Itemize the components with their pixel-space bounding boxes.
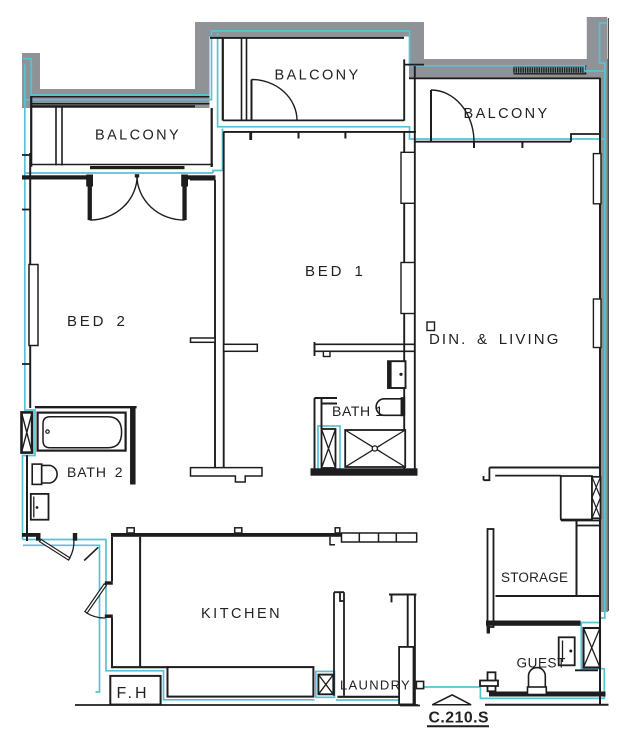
svg-text:DIN. & LIVING: DIN. & LIVING [429,331,561,348]
svg-text:BED 1: BED 1 [305,263,366,280]
svg-text:GUEST: GUEST [517,656,567,671]
svg-text:BATH 1: BATH 1 [332,403,384,419]
svg-text:BED 2: BED 2 [67,313,128,330]
svg-text:KITCHEN: KITCHEN [201,606,282,622]
svg-text:BALCONY: BALCONY [275,68,361,84]
svg-text:F.H: F.H [117,685,150,702]
svg-text:BALCONY: BALCONY [95,127,181,143]
svg-text:C.210.S: C.210.S [429,710,490,727]
svg-text:STORAGE: STORAGE [501,570,568,585]
svg-text:BATH 2: BATH 2 [67,464,124,480]
svg-text:BALCONY: BALCONY [464,106,550,122]
svg-text:LAUNDRY: LAUNDRY [340,678,411,693]
